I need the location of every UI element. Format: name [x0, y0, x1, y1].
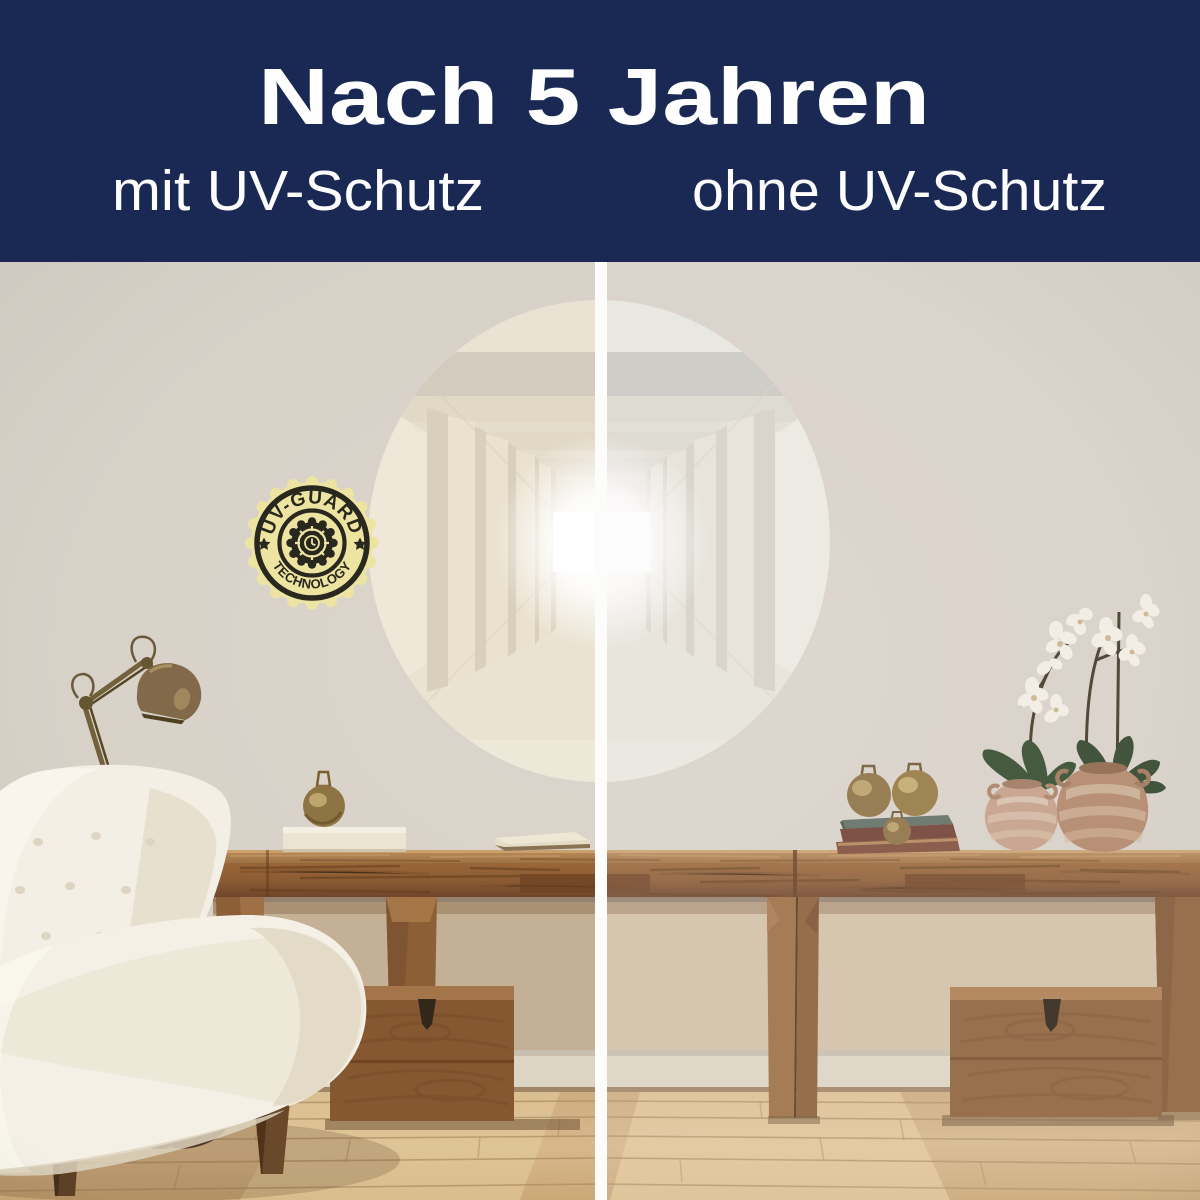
svg-text:mit UV-Schutz: mit UV-Schutz	[112, 159, 484, 223]
svg-text:ohne UV-Schutz: ohne UV-Schutz	[692, 159, 1107, 223]
svg-text:Nach 5 Jahren: Nach 5 Jahren	[258, 52, 930, 141]
